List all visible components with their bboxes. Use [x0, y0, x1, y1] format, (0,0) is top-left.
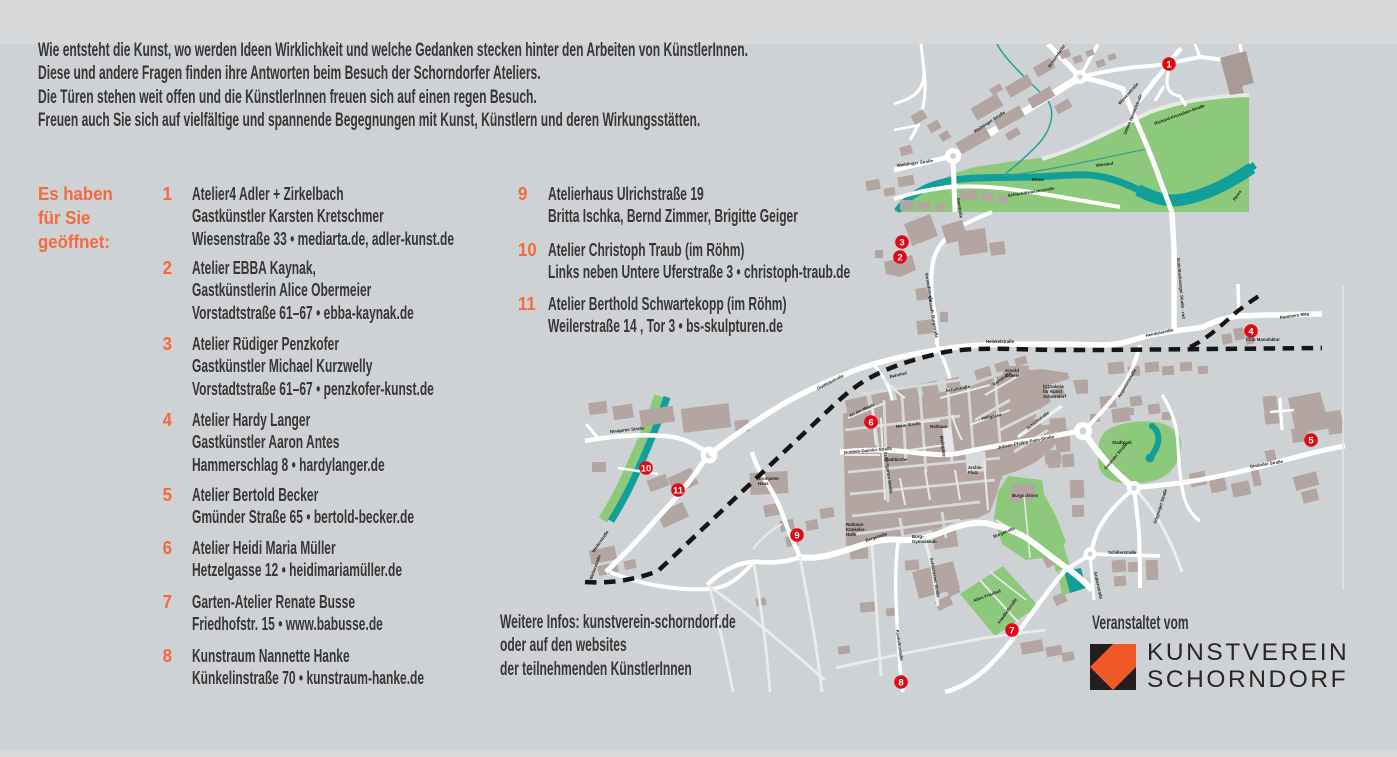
svg-text:9: 9	[794, 531, 799, 542]
svg-text:Platz: Platz	[968, 470, 978, 475]
svg-text:Rems: Rems	[1032, 177, 1044, 182]
svg-text:Schorndorf: Schorndorf	[1043, 394, 1067, 399]
svg-text:8: 8	[898, 678, 903, 689]
svg-text:3: 3	[899, 238, 904, 249]
svg-text:Haus: Haus	[758, 481, 769, 486]
svg-text:6: 6	[868, 418, 873, 429]
svg-text:Halle: Halle	[846, 532, 857, 537]
svg-text:2: 2	[897, 253, 902, 264]
svg-text:5: 5	[1308, 436, 1314, 447]
svg-text:Burgschloss: Burgschloss	[1012, 493, 1039, 498]
svg-text:Heinkelstraße: Heinkelstraße	[986, 339, 1015, 344]
svg-text:Gymnasium: Gymnasium	[912, 539, 937, 544]
svg-text:1: 1	[1166, 60, 1172, 71]
svg-text:4: 4	[1248, 327, 1254, 338]
svg-text:7: 7	[1009, 626, 1014, 637]
svg-text:Schillerstraße: Schillerstraße	[1108, 550, 1137, 555]
svg-text:11: 11	[673, 486, 684, 497]
svg-text:Galerie: Galerie	[1005, 373, 1020, 378]
svg-text:10: 10	[641, 464, 652, 475]
svg-text:Rathaus: Rathaus	[930, 424, 948, 429]
